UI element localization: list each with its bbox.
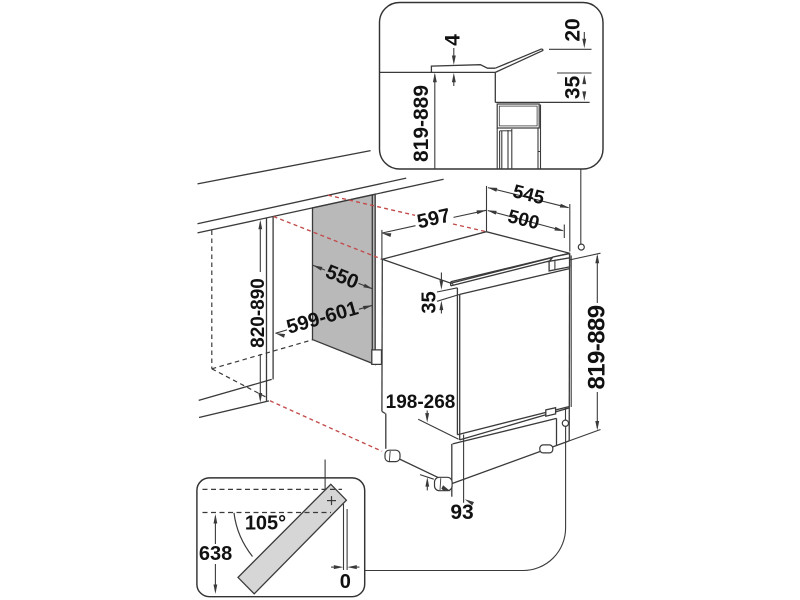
svg-text:93: 93	[450, 501, 473, 524]
svg-text:35: 35	[562, 76, 585, 100]
svg-text:4: 4	[441, 34, 464, 46]
svg-text:198-268: 198-268	[386, 392, 456, 413]
svg-text:819-889: 819-889	[584, 305, 611, 389]
svg-text:35: 35	[419, 291, 441, 313]
svg-text:20: 20	[562, 18, 585, 41]
svg-text:0: 0	[340, 571, 351, 593]
svg-text:638: 638	[199, 543, 232, 565]
svg-text:820-890: 820-890	[248, 278, 269, 348]
svg-text:819-889: 819-889	[410, 85, 433, 162]
svg-text:105°: 105°	[245, 513, 286, 535]
